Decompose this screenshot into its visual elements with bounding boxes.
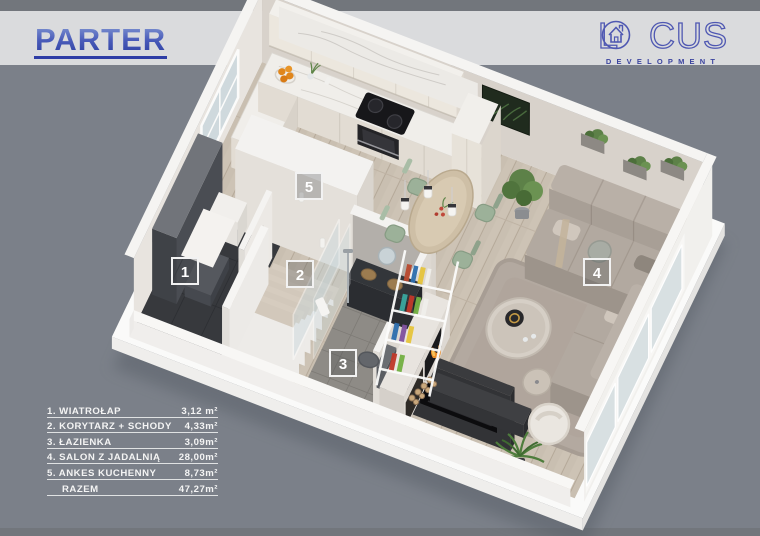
legend-label: 1. WIATROŁAP (47, 406, 121, 417)
legend-row: 2. KORYTARZ + SCHODY 4,33m² (47, 418, 218, 434)
legend-row: 1. WIATROŁAP 3,12 m² (47, 402, 218, 418)
legend-value: 3,09m² (185, 437, 218, 448)
legend-value: 3,12 m² (181, 406, 218, 417)
room-marker-1: 1 (172, 258, 198, 284)
floorplan-poster: PARTER L CUS DEVELOPMENT (0, 0, 760, 536)
marker-number: 5 (305, 179, 313, 196)
legend-label: 2. KORYTARZ + SCHODY (47, 421, 172, 432)
marker-number: 4 (593, 265, 602, 282)
legend-value: 8,73m² (185, 468, 218, 479)
area-legend: 1. WIATROŁAP 3,12 m² 2. KORYTARZ + SCHOD… (47, 402, 218, 496)
marker-number: 1 (181, 264, 189, 281)
legend-value: 47,27m² (179, 484, 218, 495)
legend-label: RAZEM (47, 484, 99, 495)
legend-label: 4. SALON Z JADALNIĄ (47, 452, 160, 463)
legend-label: 3. ŁAZIENKA (47, 437, 112, 448)
legend-row: 4. SALON Z JADALNIĄ 28,00m² (47, 449, 218, 465)
room-marker-2: 2 (287, 261, 313, 287)
room-marker-5: 5 (296, 173, 322, 199)
room-marker-4: 4 (584, 259, 610, 285)
legend-label: 5. ANKES KUCHENNY (47, 468, 156, 479)
legend-value: 28,00m² (179, 452, 218, 463)
round-mirror (379, 248, 396, 265)
legend-row: 3. ŁAZIENKA 3,09m² (47, 433, 218, 449)
legend-row: 5. ANKES KUCHENNY 8,73m² (47, 464, 218, 480)
legend-value: 4,33m² (185, 421, 218, 432)
room-marker-3: 3 (330, 350, 356, 376)
legend-row-total: RAZEM 47,27m² (47, 480, 218, 496)
marker-number: 2 (296, 267, 304, 284)
marker-number: 3 (339, 356, 347, 373)
shower-head (343, 249, 353, 253)
fluffy-armchair (529, 404, 569, 444)
